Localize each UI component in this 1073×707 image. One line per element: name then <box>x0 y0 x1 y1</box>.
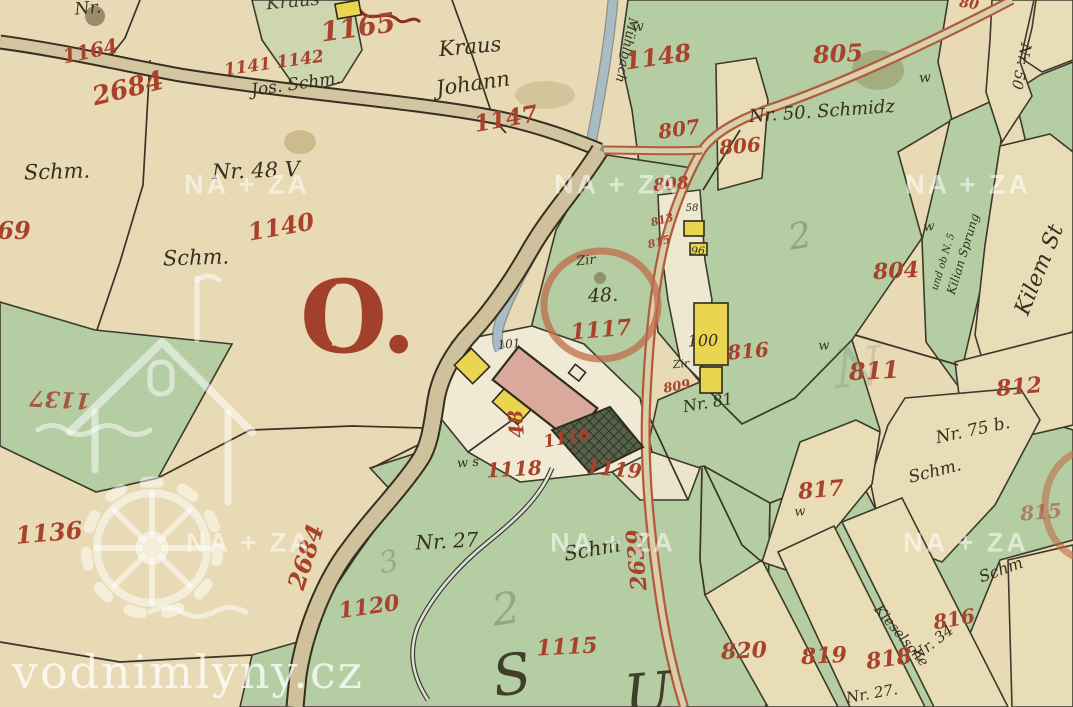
big-letter-text: O. <box>300 258 416 376</box>
cadastral-map-screenshot: O. Nr.KrausJos. Schm.KrausJohannSchm.Nr.… <box>0 0 1073 707</box>
map-drawing: O. <box>0 0 1073 707</box>
big-letter: O. <box>300 258 416 376</box>
site-watermark-text: vodnimlyny.cz <box>12 645 364 699</box>
